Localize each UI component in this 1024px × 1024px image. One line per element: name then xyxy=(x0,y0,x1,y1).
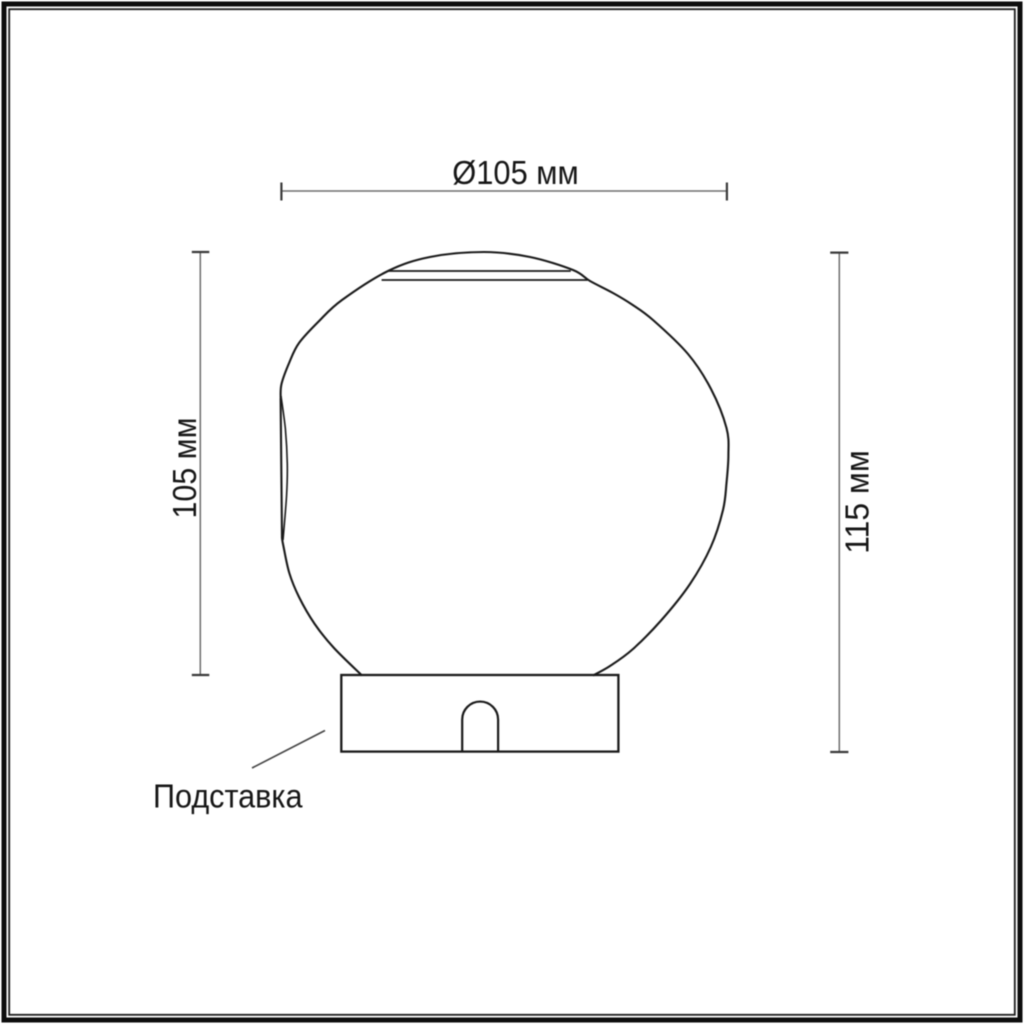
svg-text:115 мм: 115 мм xyxy=(839,450,876,554)
svg-text:Ø105 мм: Ø105 мм xyxy=(452,154,579,191)
svg-text:Подставка: Подставка xyxy=(153,778,303,815)
svg-text:105 мм: 105 мм xyxy=(166,418,203,519)
